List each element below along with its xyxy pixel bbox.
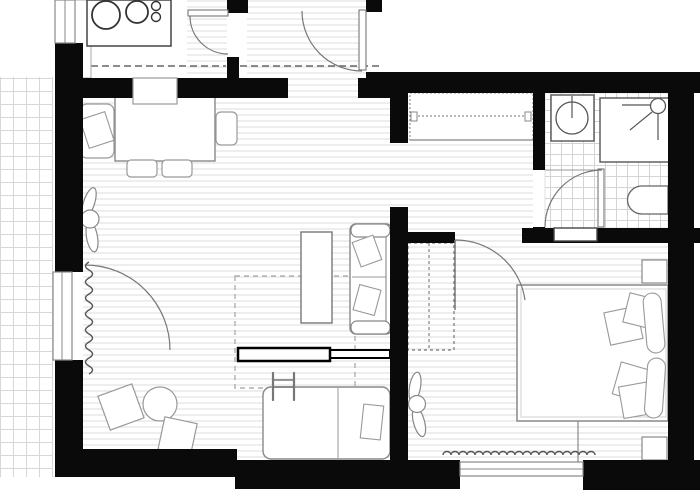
plan-layers (0, 0, 700, 500)
wall-entry-left-stub (227, 0, 248, 13)
round-side-table (143, 387, 177, 421)
bed-bolster-2 (644, 357, 666, 418)
wall-corridor-upper (390, 93, 408, 143)
wall-entry-right-stub (366, 0, 382, 12)
wall-corridor-stub (390, 207, 408, 237)
entry-door-leaf (359, 10, 366, 70)
wall-bathroom-left (533, 93, 545, 170)
wall-kitchen-living-b (177, 78, 288, 98)
cooktop (87, 0, 171, 46)
wall-bedroom-top-left (408, 232, 455, 243)
daybed-pillow (360, 404, 383, 440)
nightstand-bottom (642, 437, 667, 460)
sofa-armrest-bottom (351, 321, 390, 334)
shower-head (651, 99, 666, 114)
dining-chair-right (216, 112, 237, 145)
hall-closet-bracket-left (411, 112, 417, 121)
bedroom-plant-pot (409, 396, 426, 413)
wall-left-middle (55, 78, 83, 272)
apartment-floor-plan (0, 0, 700, 500)
toilet (628, 186, 669, 214)
wall-living-bedroom (390, 237, 408, 460)
hall-living-passage-floor (288, 78, 358, 98)
floor-plan-drawing (0, 0, 700, 500)
wall-right (668, 85, 694, 465)
wall-bottom-left (55, 449, 237, 477)
wall-bathroom-bedroom (522, 228, 700, 243)
bathroom-door-leaf (598, 169, 604, 227)
coffee-table (301, 232, 332, 323)
wall-left-upper (55, 43, 83, 78)
wall-kitchen-jamb (227, 57, 239, 78)
kitchen-pass-through (133, 78, 177, 104)
bedroom-wall-threshold (554, 228, 597, 241)
sofa-armrest-top (351, 224, 390, 237)
living-plant-pot (81, 210, 99, 228)
dining-chair-bottom-right (162, 160, 192, 177)
graph-paper-margin (0, 77, 53, 477)
kitchen-door-leaf (188, 10, 228, 16)
tv-console (238, 348, 330, 361)
nightstand-top (642, 260, 667, 283)
wall-top-right (366, 72, 700, 93)
dining-chair-bottom-left (127, 160, 157, 177)
wall-bottom-middle (235, 460, 460, 489)
dining-table (115, 97, 215, 161)
hall-closet-bracket-right (525, 112, 531, 121)
